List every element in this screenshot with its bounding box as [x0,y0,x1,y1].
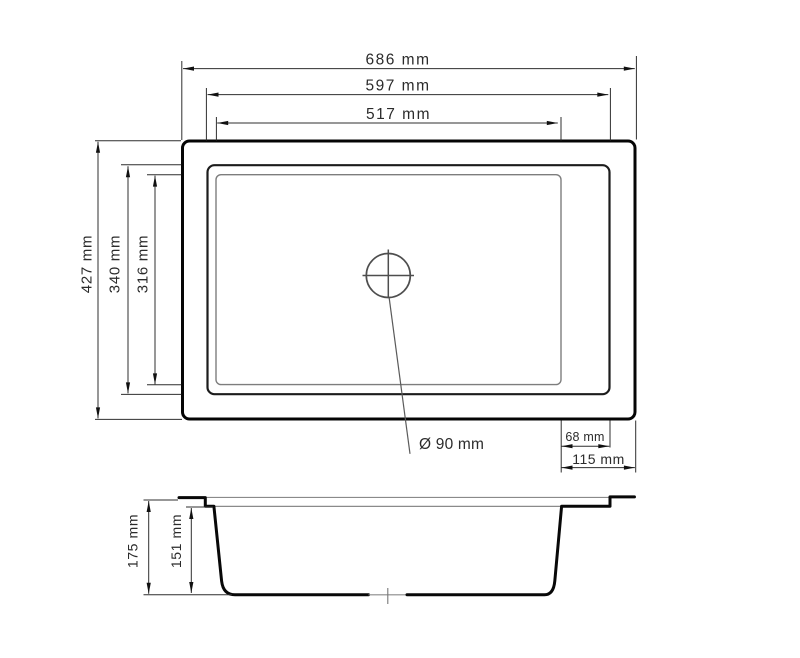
svg-text:115 mm: 115 mm [572,451,625,467]
svg-text:597 mm: 597 mm [366,78,431,95]
svg-text:427 mm: 427 mm [79,235,96,293]
svg-text:Ø 90 mm: Ø 90 mm [419,436,484,453]
svg-text:686 mm: 686 mm [366,52,431,69]
svg-text:340 mm: 340 mm [107,235,124,293]
svg-text:316 mm: 316 mm [135,235,152,293]
svg-text:151 mm: 151 mm [168,514,184,568]
svg-text:517 mm: 517 mm [366,106,431,123]
svg-text:175 mm: 175 mm [125,514,141,568]
svg-text:68 mm: 68 mm [565,430,604,444]
